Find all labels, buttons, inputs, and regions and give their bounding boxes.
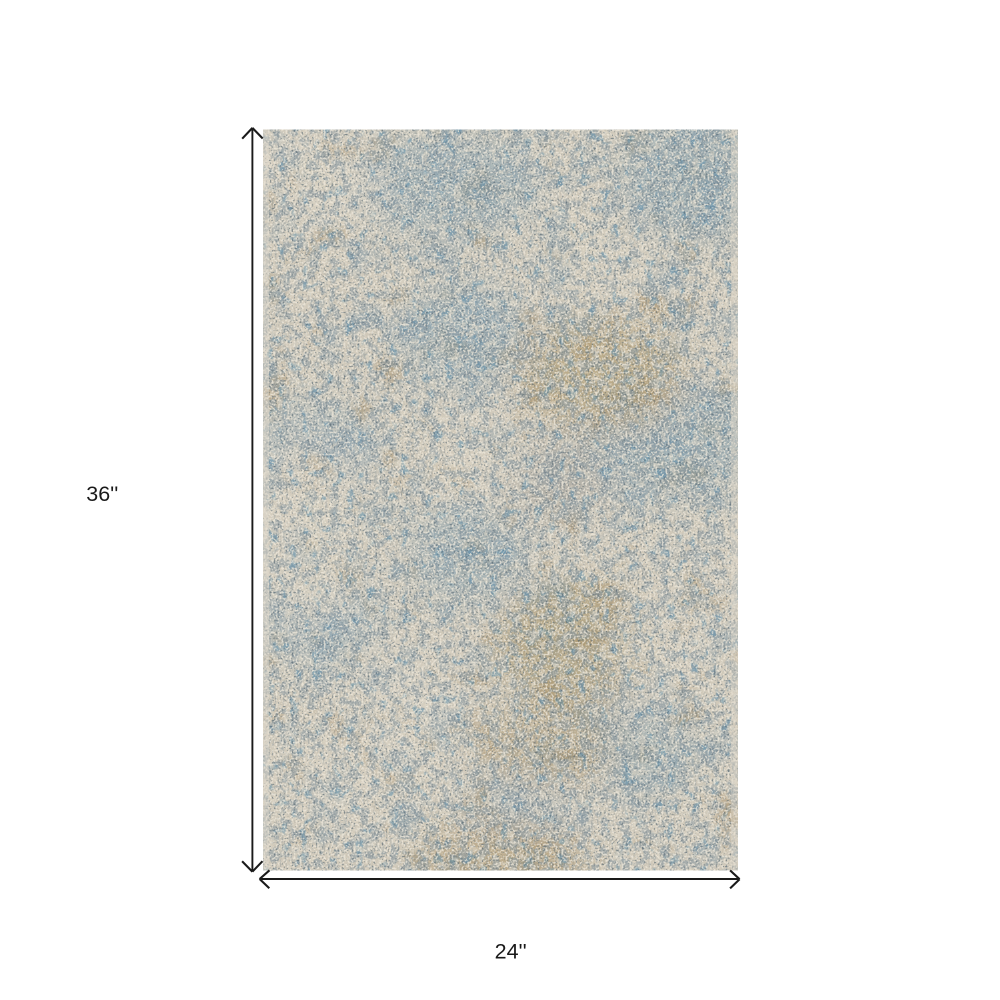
svg-text:36'': 36'' xyxy=(86,482,118,506)
svg-text:24'': 24'' xyxy=(495,940,527,964)
